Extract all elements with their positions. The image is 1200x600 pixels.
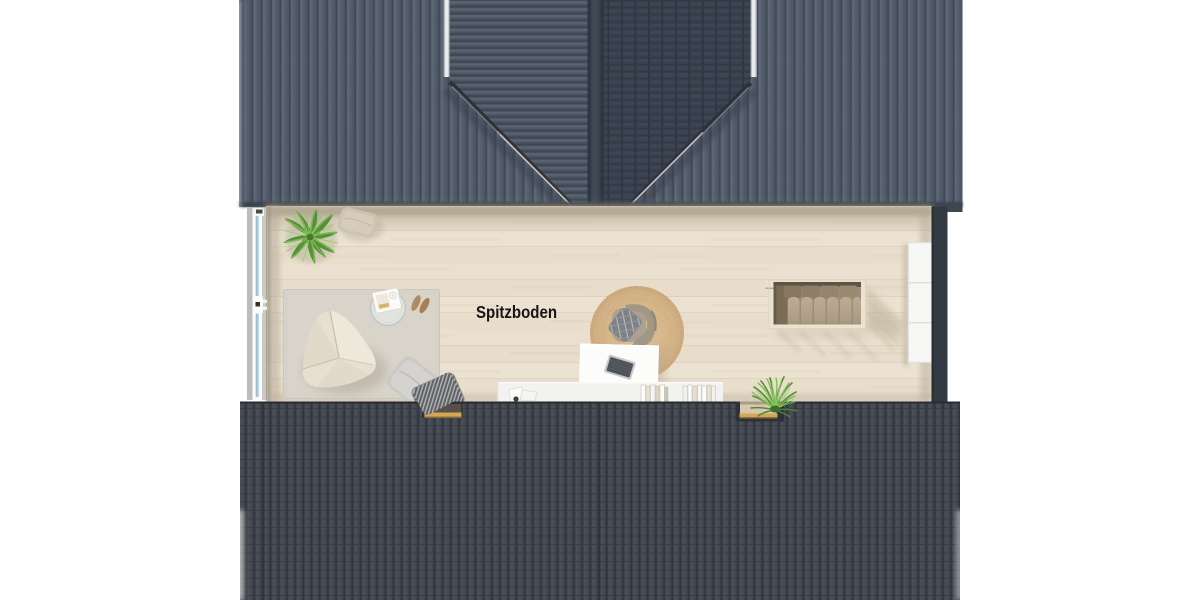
svg-text:Spitzboden: Spitzboden — [476, 302, 557, 322]
